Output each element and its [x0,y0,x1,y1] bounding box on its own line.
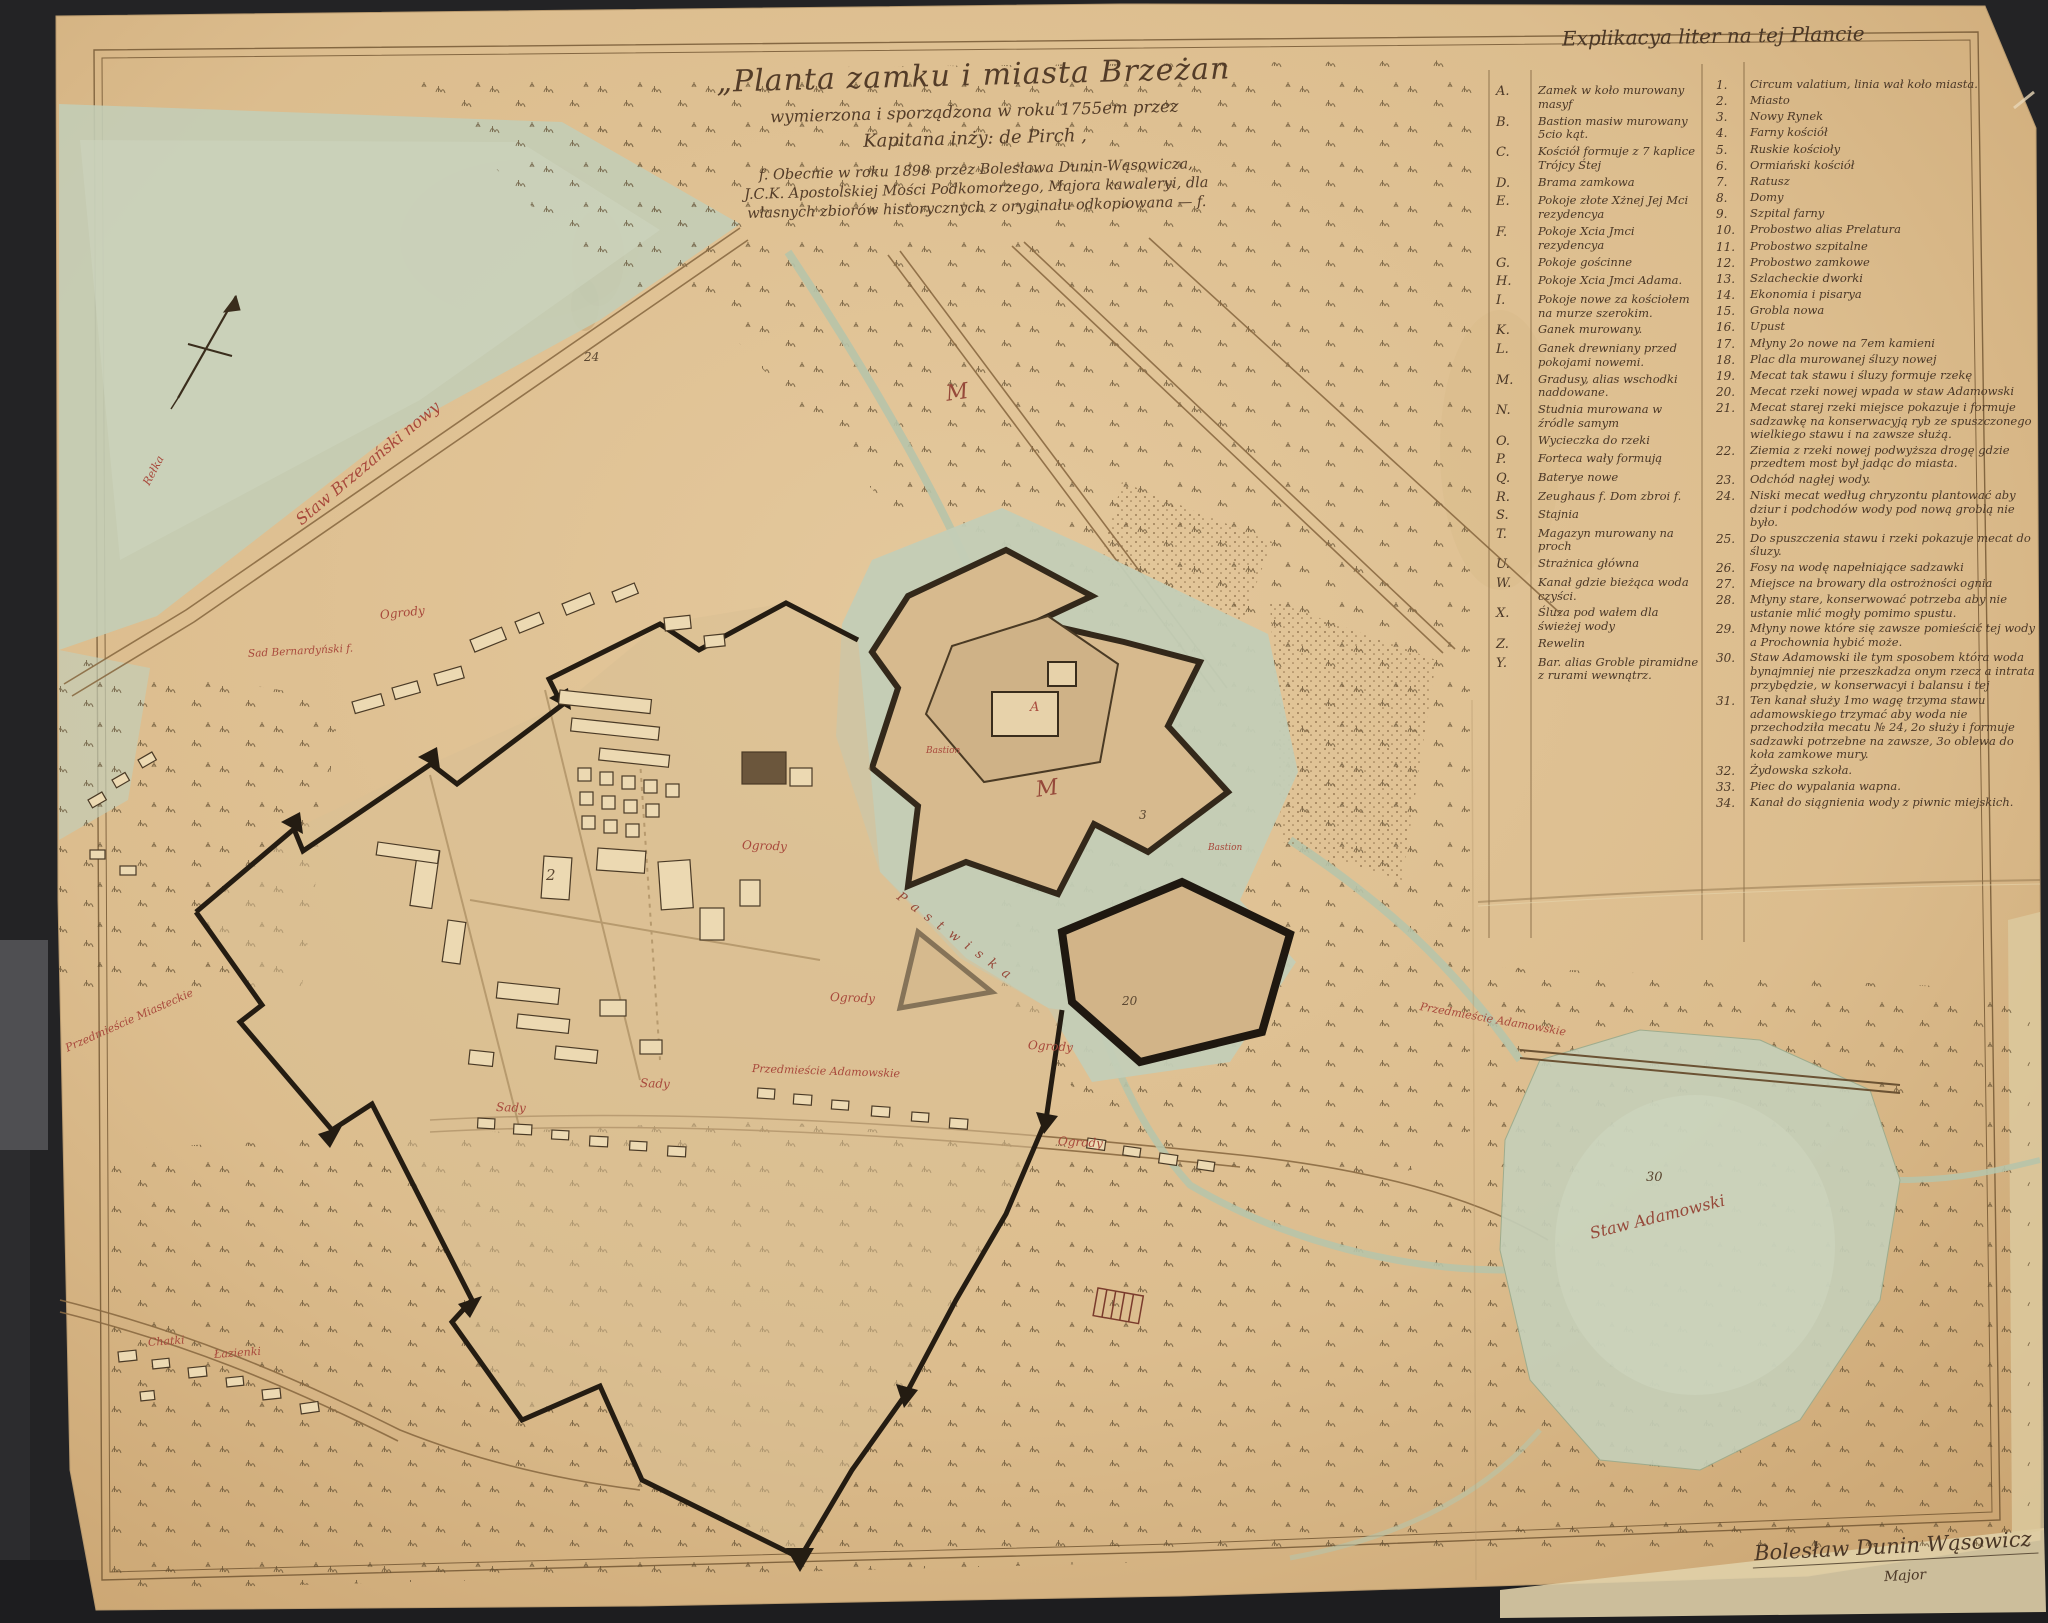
map-label: Staw Brzezański nowy [292,397,444,529]
map-label: Bastion [1208,843,1242,853]
map-photo: „Planta zamku i miasta Brzeżan wymierzon… [0,0,2048,1623]
map-label: Ogrody [1058,1134,1104,1150]
map-label: Sady [496,1100,526,1115]
map-label: 24 [584,350,599,364]
map-label: A [1030,700,1039,715]
map-label: 30 [1646,1170,1663,1185]
map-label: Ogrody [379,603,425,622]
map-label: Staw Adamowski [1588,1191,1727,1243]
signature-rank: Major [1884,1567,1927,1585]
map-label: Przedmieście Miasteckie [63,986,195,1054]
map-label: Przedmieście Adamowskie [1419,1000,1567,1039]
map-label: Łazienki [214,1345,262,1361]
map-label: Sad Bernardyński f. [248,643,354,660]
map-label: Ogrody [742,838,787,854]
map-label: M [1034,775,1060,803]
map-label: Przedmieście Adamowskie [752,1062,901,1080]
map-label: Sady [640,1076,670,1091]
map-label: M [944,379,970,407]
map-label: 2 [546,866,556,884]
map-labels-layer: Staw Brzezański nowy Rełka Ogrody Sad Be… [0,0,2048,1623]
map-label: Bastion [926,746,960,756]
map-label: Ogrody [1028,1038,1074,1054]
map-label: 3 [1139,808,1147,822]
map-label: Pastwiska [894,889,1021,987]
map-label: Rełka [140,454,166,488]
map-label: 20 [1122,994,1137,1008]
map-label: Ogrody [830,990,875,1006]
map-label: Chatki [148,1333,185,1349]
